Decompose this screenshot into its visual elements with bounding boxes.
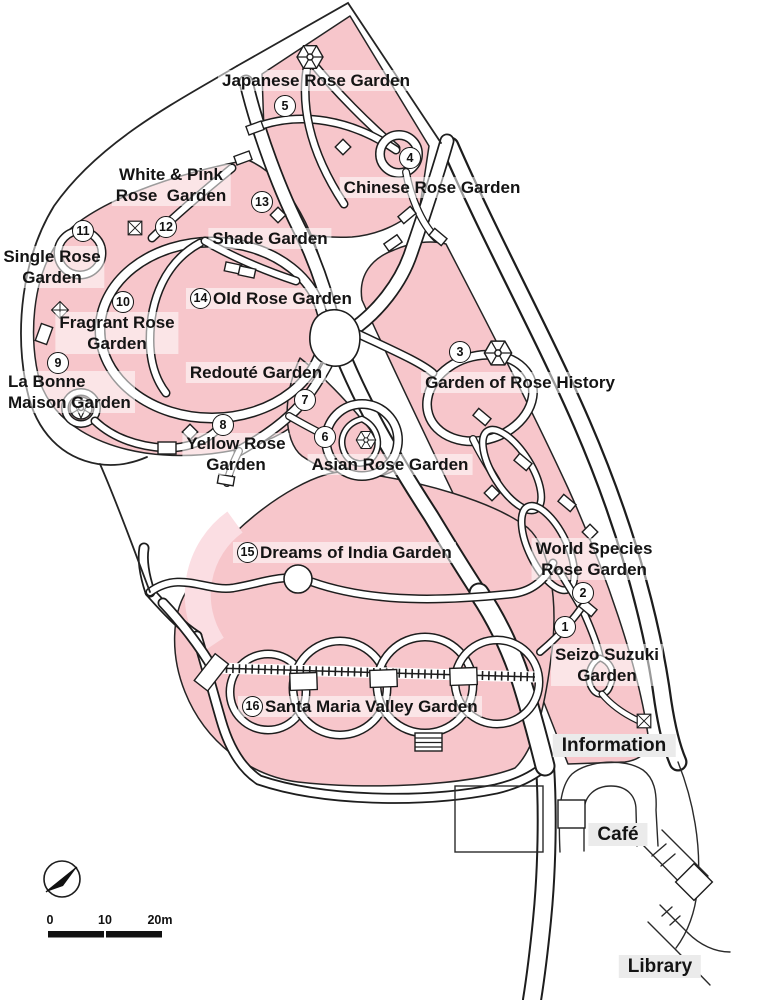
label-library: Library: [619, 955, 701, 978]
map-graphics: [0, 0, 761, 1000]
marker-15: 15: [237, 542, 258, 563]
label-white-pink-rose-garden: White & Pink Rose Garden: [112, 164, 231, 206]
point-marker-icon: [637, 714, 651, 728]
marker-9: 9: [47, 352, 69, 374]
marker-6: 6: [314, 426, 336, 448]
marker-11: 11: [72, 220, 94, 242]
scale-bar: [48, 931, 162, 938]
label-text: Old Rose Garden: [213, 288, 352, 309]
marker-2: 2: [572, 582, 594, 604]
marker-14: 14: [190, 288, 211, 309]
label-fragrant-rose-garden: Fragrant Rose Garden: [55, 312, 178, 354]
label-redoute-garden: Redouté Garden: [186, 362, 326, 383]
point-marker-icon: [128, 221, 142, 235]
label-old-rose-garden: 14 Old Rose Garden: [186, 288, 356, 309]
label-cafe: Café: [588, 823, 647, 846]
gate-icon: [217, 474, 234, 486]
label-information: Information: [553, 734, 676, 757]
pergola-segment: [290, 673, 318, 691]
gazebo-icon: [484, 341, 511, 365]
scale-tick-20m: 20m: [147, 913, 172, 927]
marker-16: 16: [242, 696, 263, 717]
label-yellow-rose-garden: Yellow Rose Garden: [182, 433, 289, 475]
label-single-rose-garden: Single Rose Garden: [0, 246, 105, 288]
label-text: Santa Maria Valley Garden: [265, 696, 478, 717]
label-world-species-rose-garden: World Species Rose Garden: [532, 538, 657, 580]
label-asian-rose-garden: Asian Rose Garden: [308, 454, 473, 475]
marker-10: 10: [112, 291, 134, 313]
label-japanese-rose-garden: Japanese Rose Garden: [218, 70, 414, 91]
rose-garden-map: Japanese Rose Garden Chinese Rose Garden…: [0, 0, 761, 1000]
scale-tick-0: 0: [47, 913, 54, 927]
marker-5: 5: [274, 95, 296, 117]
label-text: Dreams of India Garden: [260, 542, 452, 563]
steps-icon: [415, 733, 442, 751]
marker-3: 3: [449, 341, 471, 363]
central-plaza: [310, 310, 360, 366]
marker-1: 1: [554, 616, 576, 638]
stairs-icon: [676, 864, 713, 901]
steps-gate-icon: [158, 442, 176, 454]
marker-4: 4: [399, 147, 421, 169]
stairs-icon: [558, 800, 585, 828]
marker-8: 8: [212, 414, 234, 436]
label-chinese-rose-garden: Chinese Rose Garden: [340, 177, 525, 198]
marker-13: 13: [251, 191, 273, 213]
compass-icon: [44, 861, 80, 897]
gazebo-icon: [297, 46, 323, 69]
dreams-pond: [284, 565, 312, 593]
label-dreams-of-india-garden: 15 Dreams of India Garden: [233, 542, 456, 563]
label-shade-garden: Shade Garden: [208, 228, 331, 249]
label-la-bonne-maison-garden: La Bonne Maison Garden: [4, 371, 135, 413]
pergola-segment: [370, 670, 398, 688]
marker-7: 7: [294, 389, 316, 411]
label-garden-of-rose-history: Garden of Rose History: [421, 372, 619, 393]
scale-tick-10: 10: [98, 913, 112, 927]
marker-12: 12: [155, 216, 177, 238]
gazebo-icon: [356, 432, 376, 449]
cafe-library-buildings: [455, 762, 730, 985]
label-santa-maria-valley-garden: 16 Santa Maria Valley Garden: [238, 696, 482, 717]
pergola-segment: [450, 668, 478, 686]
label-seizo-suzuki-garden: Seizo Suzuki Garden: [551, 644, 663, 686]
